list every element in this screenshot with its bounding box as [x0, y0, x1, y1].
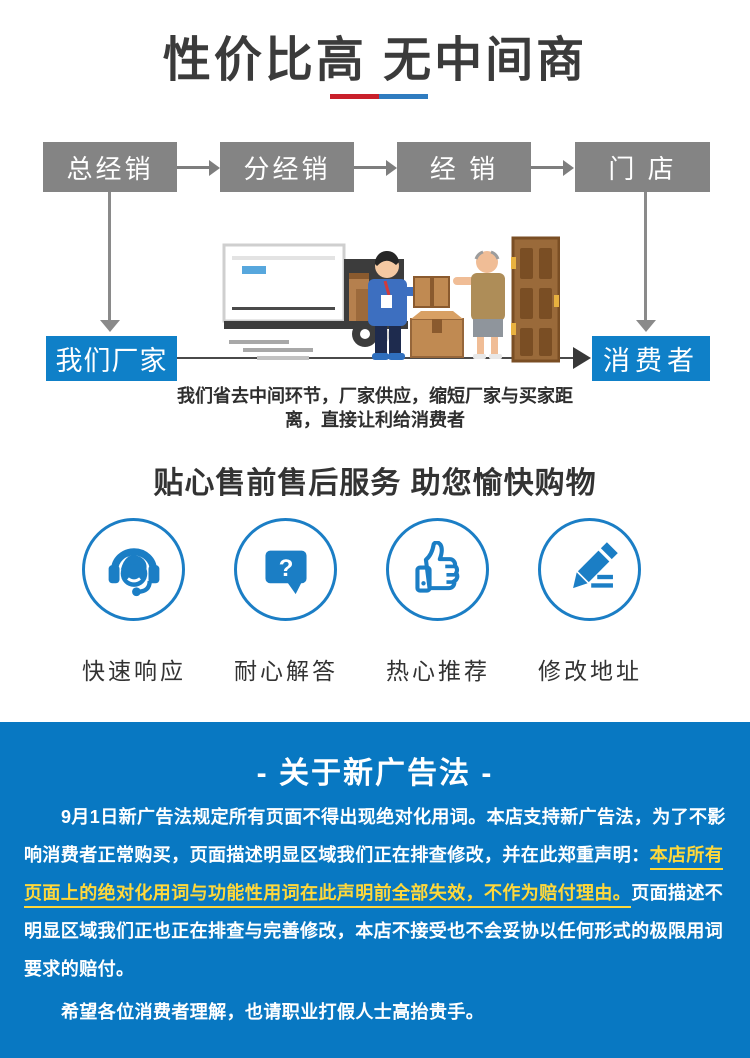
notice-highlight: 页面上的绝对化用词与功能性用词在此声明前全部失效，不作为赔付理由。: [24, 883, 631, 908]
factory-consumer-arrowhead: [573, 347, 591, 369]
delivery-illustration: [215, 235, 560, 370]
ad-law-notice-section: - 关于新广告法 - 9月1日新广告法规定所有页面不得出现绝对化用词。本店支持新…: [0, 722, 750, 1058]
service-item-recommend: 热心推荐: [386, 518, 490, 683]
service-label: 热心推荐: [366, 652, 510, 686]
divider-red-segment: [330, 94, 379, 99]
flow-box-sub-distributor: 分经销: [220, 142, 354, 192]
svg-text:?: ?: [278, 555, 293, 582]
consumer-box: 消费者: [592, 336, 710, 381]
notice-line: 希望各位消费者理解，也请职业打假人士高抬贵手。: [24, 993, 726, 1031]
service-item-patient-answer: ? 耐心解答: [234, 518, 338, 683]
arrow-down-icon: [636, 192, 656, 332]
notice-text: 响消费者正常购买，页面描述明显区域我们正在排查修改，并在此郑重声明：: [24, 845, 650, 865]
service-item-fast-response: 快速响应: [82, 518, 186, 683]
arrow-right-icon: [354, 158, 397, 176]
notice-text: 明显区域我们正也正在排查与完善修改，本店不接受也不会妥协以任何形式的极限用词: [24, 921, 723, 941]
services-title: 贴心售前售后服务 助您愉快购物: [0, 458, 750, 502]
flow-caption: 我们省去中间环节，厂家供应，缩短厂家与买家距 离，直接让利给消费者: [0, 384, 750, 432]
service-label: 快速响应: [62, 652, 206, 686]
product-promo-page: 性价比高 无中间商 总经销 分经销 经 销 门 店: [0, 0, 750, 1058]
headset-icon: [105, 541, 163, 599]
notice-text: 页面描述不: [631, 883, 723, 903]
notice-line: 明显区域我们正也正在排查与完善修改，本店不接受也不会妥协以任何形式的极限用词: [24, 912, 726, 950]
caption-line: 离，直接让利给消费者: [0, 408, 750, 432]
notice-highlight: 本店所有: [650, 845, 724, 870]
notice-text: 9月1日新广告法规定所有页面不得出现绝对化用词。本店支持新广告法，为了不影: [61, 807, 726, 827]
service-label: 修改地址: [518, 652, 662, 686]
icon-circle: [386, 518, 489, 621]
title-divider: [330, 94, 428, 99]
notice-line: 页面上的绝对化用词与功能性用词在此声明前全部失效，不作为赔付理由。页面描述不: [24, 874, 726, 912]
icon-circle: ?: [234, 518, 337, 621]
thumb-up-icon: [409, 541, 467, 599]
divider-blue-segment: [379, 94, 428, 99]
notice-line: 响消费者正常购买，页面描述明显区域我们正在排查修改，并在此郑重声明：本店所有: [24, 836, 726, 874]
factory-box: 我们厂家: [46, 336, 177, 381]
page-title: 性价比高 无中间商: [0, 20, 750, 90]
notice-line: 要求的赔付。: [24, 950, 726, 988]
arrow-right-icon: [531, 158, 574, 176]
notice-body: 9月1日新广告法规定所有页面不得出现绝对化用词。本店支持新广告法，为了不影 响消…: [0, 798, 750, 1031]
notice-title: - 关于新广告法 -: [0, 748, 750, 792]
arrow-right-icon: [177, 158, 220, 176]
icon-circle: [82, 518, 185, 621]
service-item-change-address: 修改地址: [538, 518, 642, 683]
notice-line: 9月1日新广告法规定所有页面不得出现绝对化用词。本店支持新广告法，为了不影: [24, 798, 726, 836]
service-label: 耐心解答: [214, 652, 358, 686]
pencil-icon: [561, 541, 619, 599]
flow-box-dealer: 经 销: [397, 142, 531, 192]
notice-text: 希望各位消费者理解，也请职业打假人士高抬贵手。: [61, 1002, 484, 1022]
arrow-down-icon: [100, 192, 120, 332]
question-bubble-icon: ?: [257, 541, 315, 599]
icon-circle: [538, 518, 641, 621]
flow-box-store: 门 店: [575, 142, 710, 192]
notice-text: 要求的赔付。: [24, 959, 134, 979]
flow-box-general-distributor: 总经销: [43, 142, 177, 192]
caption-line: 我们省去中间环节，厂家供应，缩短厂家与买家距: [0, 384, 750, 408]
